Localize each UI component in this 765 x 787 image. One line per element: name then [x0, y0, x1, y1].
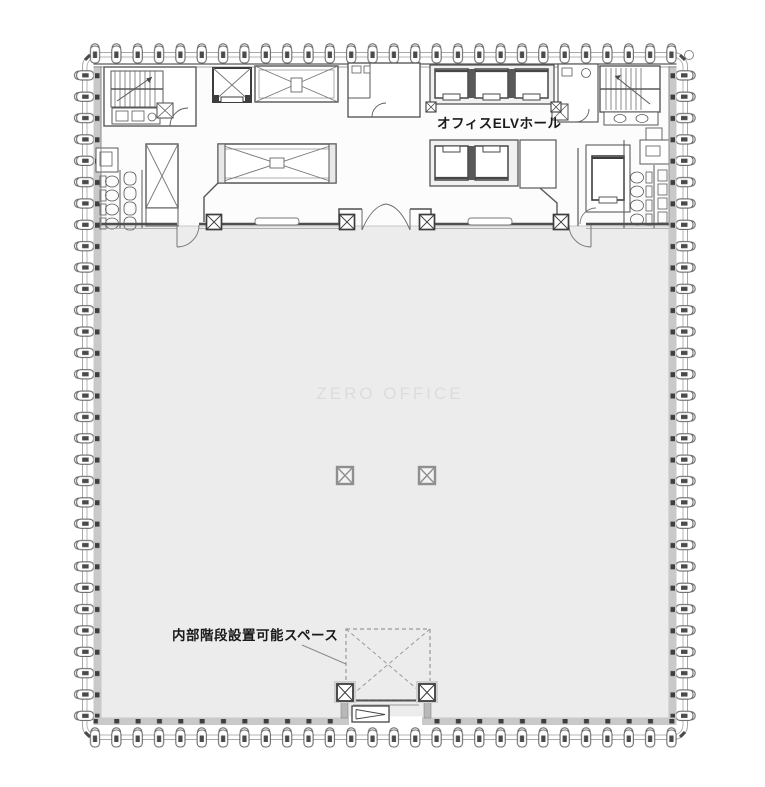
- elevator-shaft-left-a: [213, 68, 251, 103]
- elevator-hall-label: オフィスELVホール: [437, 116, 561, 131]
- mullion-row-bottom: [84, 726, 682, 749]
- watermark-text: ZERO OFFICE: [316, 384, 463, 403]
- elevator-bank-top: [430, 65, 554, 104]
- elevator-shaft-left-b: [255, 66, 338, 102]
- mullion-row-left: [73, 65, 96, 727]
- hatch-marker: [352, 706, 389, 722]
- floor-plan-image: オフィスELVホール ZERO OFFICE 内部階段設置可能スペース: [0, 0, 765, 787]
- center-machine-room: [348, 63, 420, 117]
- service-room-right: [552, 64, 598, 122]
- mullion-row-top: [84, 42, 682, 65]
- internal-stair-label: 内部階段設置可能スペース: [172, 627, 338, 643]
- mullion-row-right: [674, 65, 697, 727]
- office-floor-area: [101, 226, 669, 718]
- corner-marker-circle: [685, 51, 694, 60]
- floor-plan-drawing: オフィスELVホール ZERO OFFICE 内部階段設置可能スペース: [0, 0, 765, 787]
- stairwell-left: [104, 67, 196, 126]
